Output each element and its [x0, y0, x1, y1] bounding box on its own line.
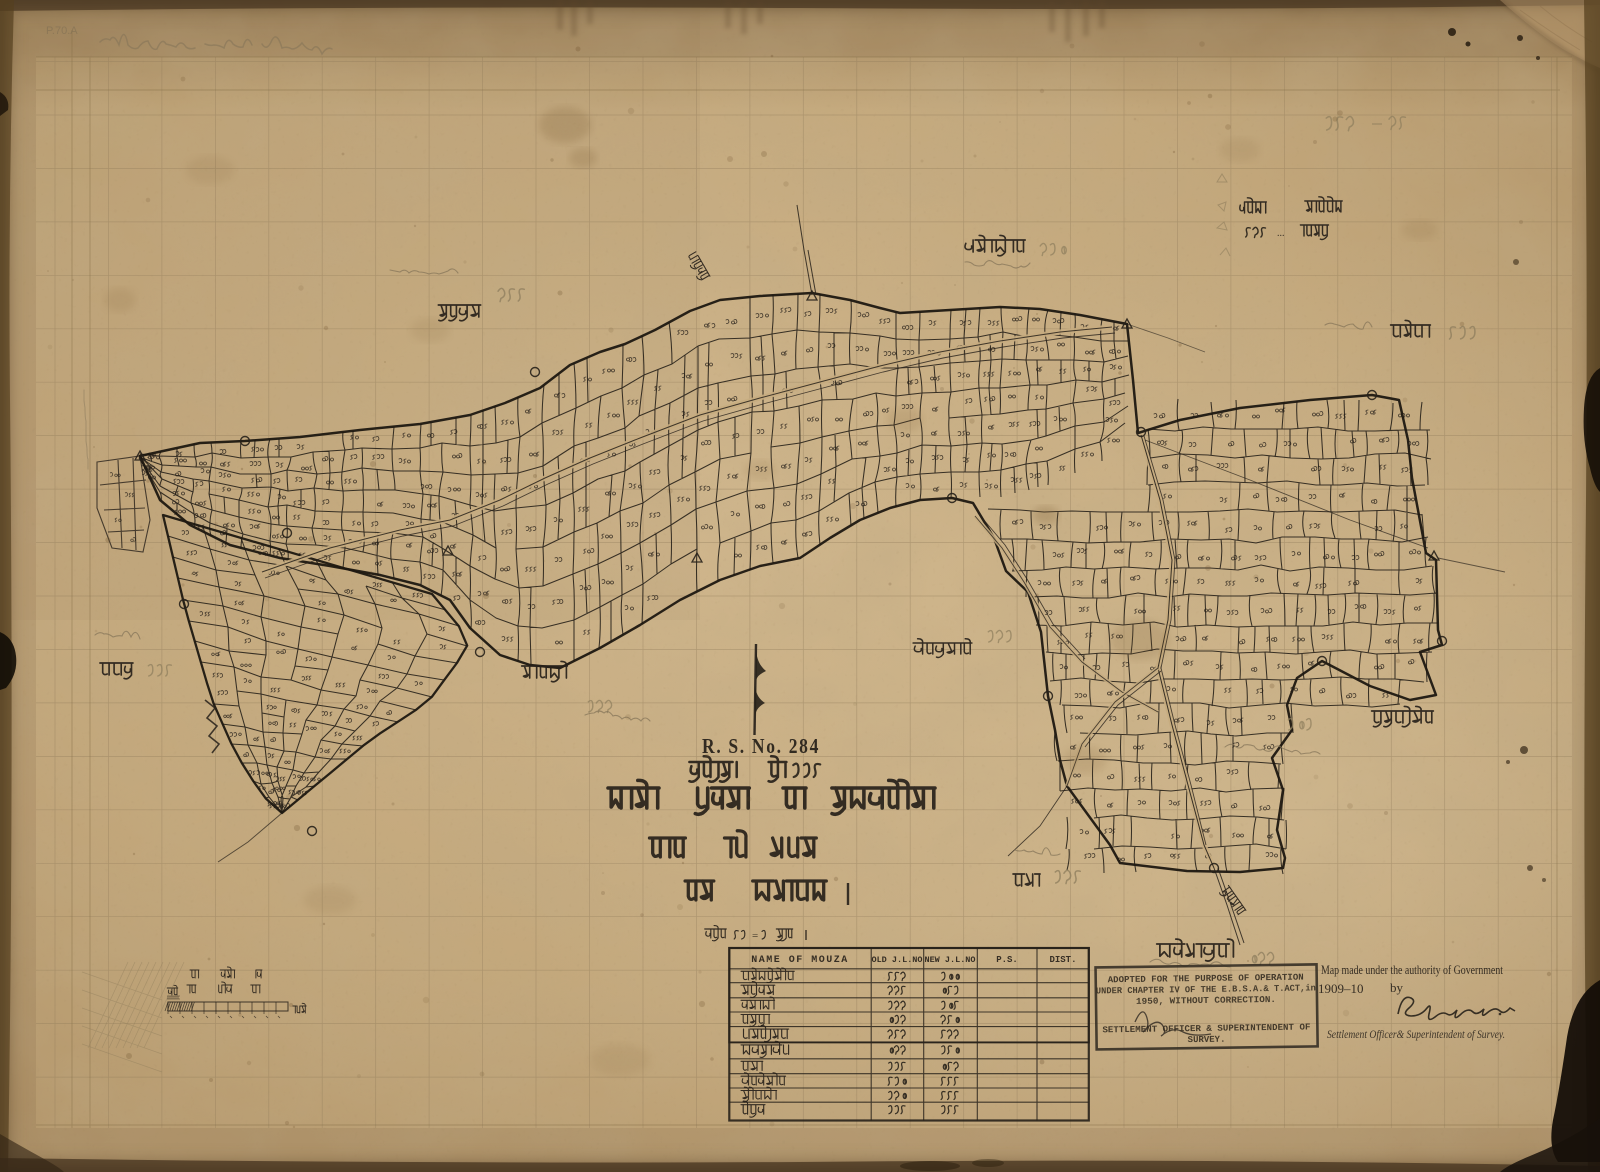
- svg-text:by: by: [1390, 980, 1404, 995]
- svg-text:Settlement Officer& Superinten: Settlement Officer& Superintendent of Su…: [1327, 1029, 1505, 1041]
- svg-text:R. S. No. 284: R. S. No. 284: [702, 734, 820, 758]
- svg-text:...: ...: [1277, 228, 1285, 239]
- svg-text:NEW J.L.NO: NEW J.L.NO: [924, 955, 975, 965]
- svg-text:=: =: [752, 930, 758, 942]
- svg-text:SURVEY.: SURVEY.: [1188, 1035, 1226, 1046]
- svg-text:1909–10: 1909–10: [1318, 981, 1364, 996]
- svg-text:P.S.: P.S.: [996, 955, 1018, 965]
- svg-text:Map made under the authority o: Map made under the authority of Governme…: [1321, 963, 1503, 977]
- svg-text:DIST.: DIST.: [1049, 955, 1076, 965]
- svg-text:1950, WITHOUT CORRECTION.: 1950, WITHOUT CORRECTION.: [1136, 995, 1276, 1007]
- svg-text:OLD J.L.NO: OLD J.L.NO: [871, 955, 922, 965]
- svg-text:P.70.A: P.70.A: [46, 25, 78, 37]
- svg-text:NAME OF MOUZA: NAME OF MOUZA: [751, 955, 849, 966]
